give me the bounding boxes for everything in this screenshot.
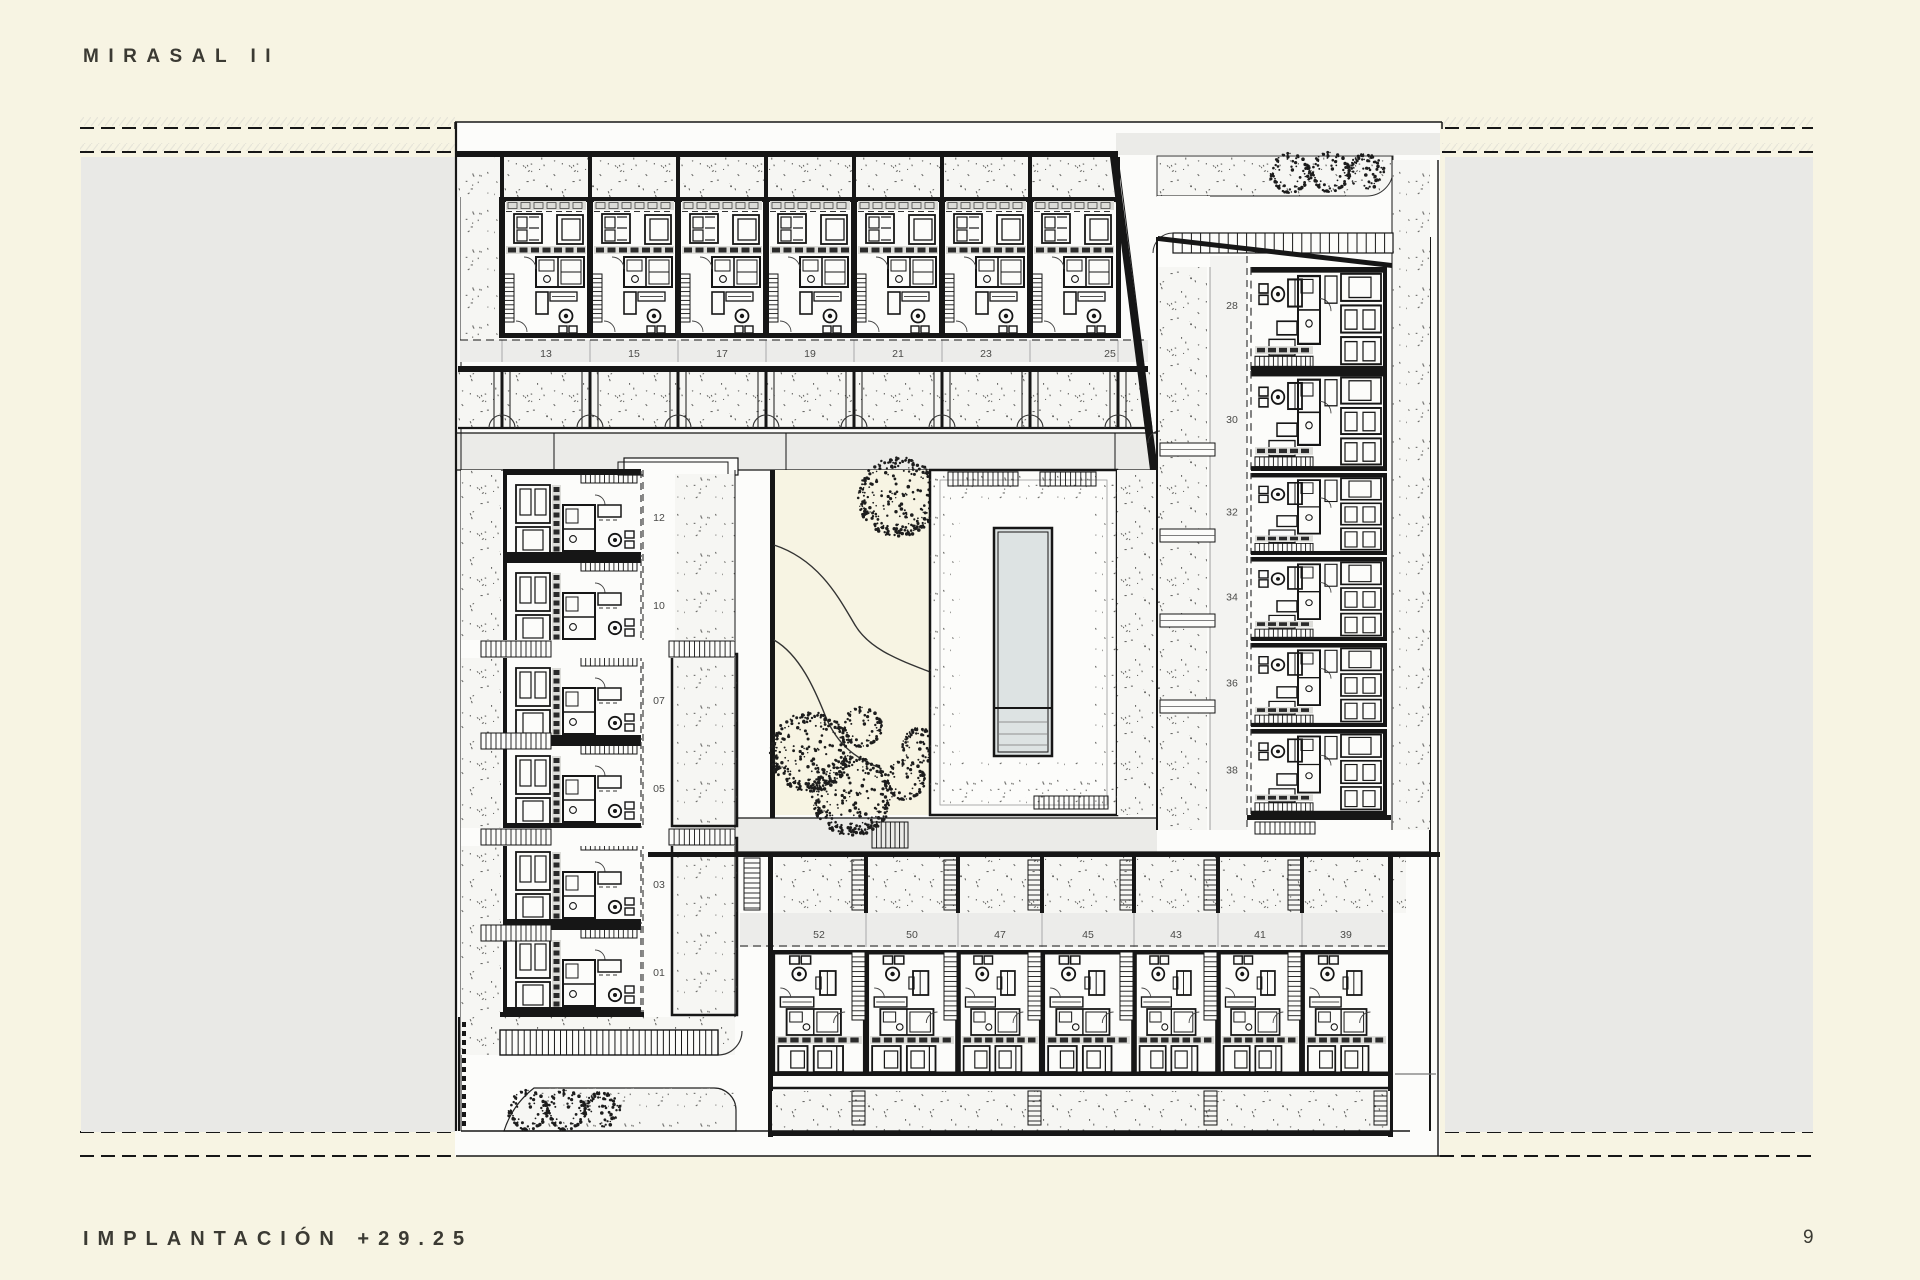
svg-text:21: 21 — [892, 348, 904, 360]
svg-text:MIRASAL II: MIRASAL II — [83, 46, 280, 67]
svg-text:28: 28 — [1226, 300, 1238, 312]
svg-text:30: 30 — [1226, 414, 1238, 426]
svg-text:43: 43 — [1170, 929, 1182, 941]
svg-text:19: 19 — [804, 348, 816, 360]
svg-text:15: 15 — [628, 348, 640, 360]
svg-text:36: 36 — [1226, 678, 1238, 690]
svg-text:01: 01 — [653, 967, 665, 979]
svg-text:32: 32 — [1226, 507, 1238, 519]
svg-text:45: 45 — [1082, 929, 1094, 941]
svg-text:10: 10 — [653, 600, 665, 612]
svg-text:25: 25 — [1104, 348, 1116, 360]
svg-text:IMPLANTACIÓN +29.25: IMPLANTACIÓN +29.25 — [83, 1226, 473, 1250]
svg-text:34: 34 — [1226, 592, 1238, 604]
svg-text:41: 41 — [1254, 929, 1266, 941]
svg-text:39: 39 — [1340, 929, 1352, 941]
svg-text:50: 50 — [906, 929, 918, 941]
svg-text:17: 17 — [716, 348, 728, 360]
svg-text:05: 05 — [653, 783, 665, 795]
svg-text:38: 38 — [1226, 765, 1238, 777]
svg-text:52: 52 — [813, 929, 825, 941]
svg-text:13: 13 — [540, 348, 552, 360]
svg-text:03: 03 — [653, 879, 665, 891]
svg-text:12: 12 — [653, 512, 665, 524]
svg-text:9: 9 — [1803, 1227, 1814, 1248]
svg-text:47: 47 — [994, 929, 1006, 941]
svg-text:07: 07 — [653, 695, 665, 707]
svg-text:23: 23 — [980, 348, 992, 360]
